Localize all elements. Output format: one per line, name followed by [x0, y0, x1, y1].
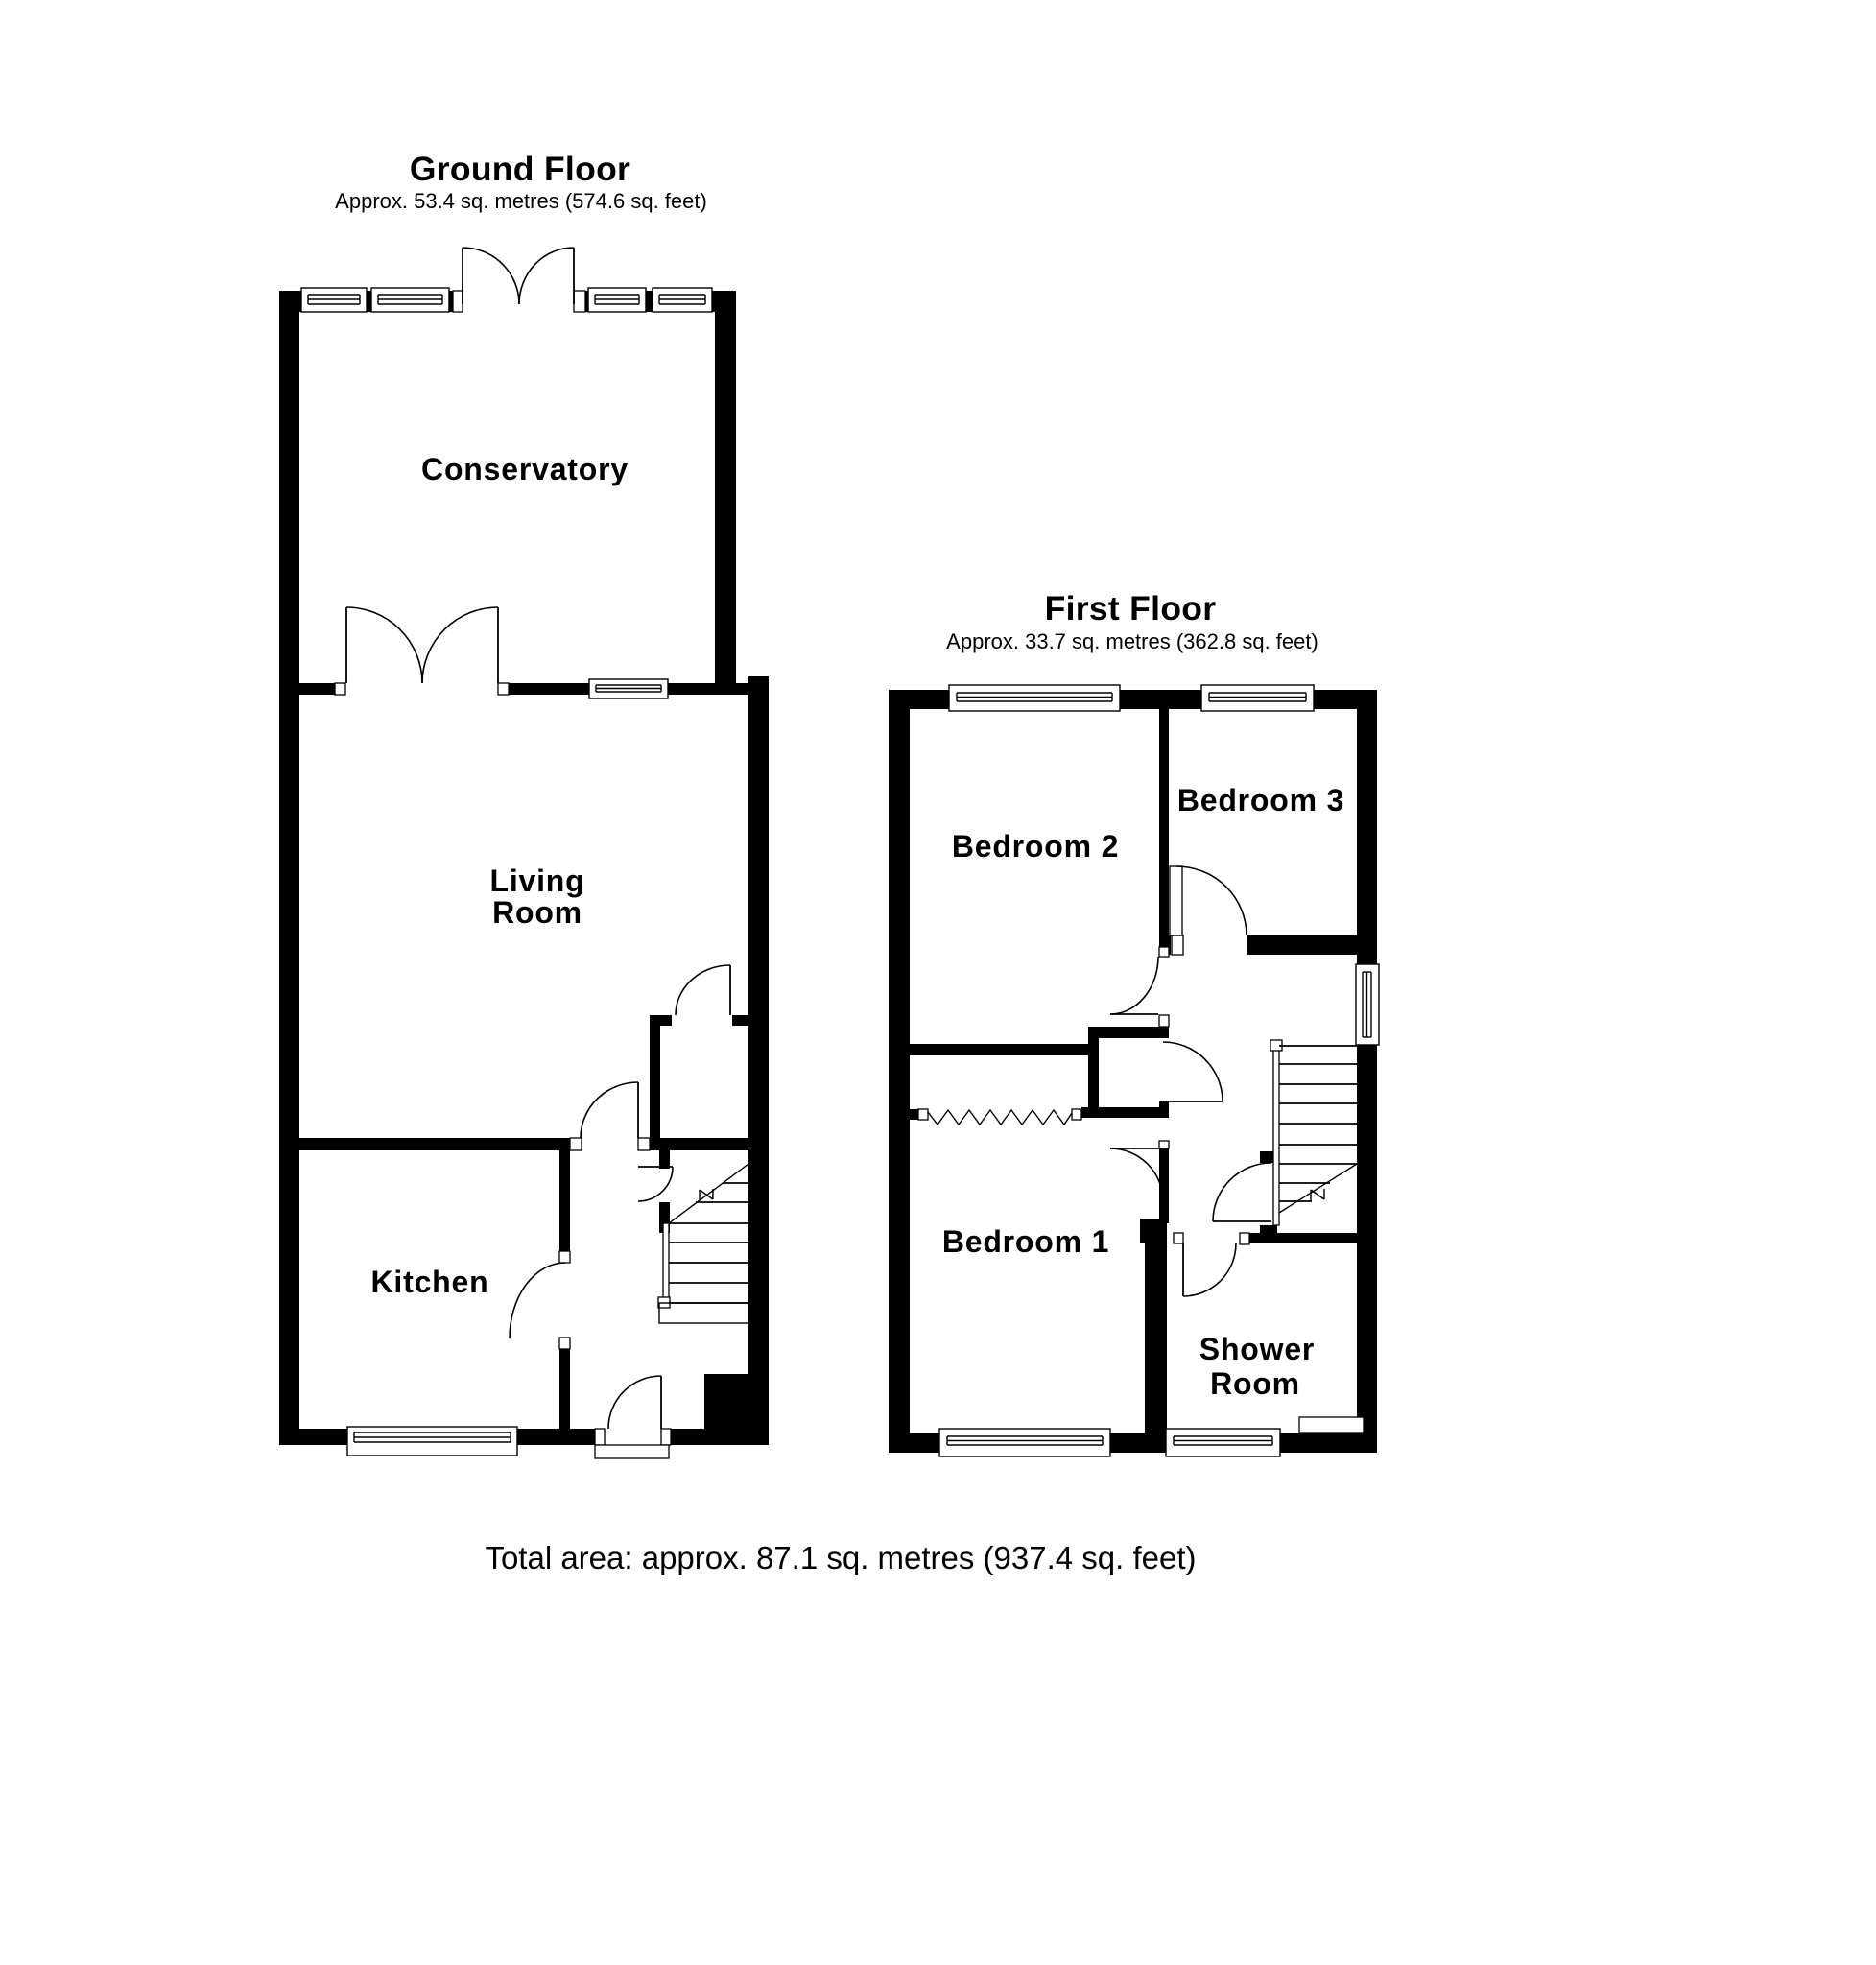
svg-text:Total area: approx. 87.1 sq. m: Total area: approx. 87.1 sq. metres (937… — [485, 1540, 1196, 1575]
svg-text:Shower: Shower — [1199, 1332, 1315, 1366]
svg-text:Bedroom 2: Bedroom 2 — [952, 829, 1119, 864]
svg-text:Approx. 53.4 sq. metres (574.6: Approx. 53.4 sq. metres (574.6 sq. feet) — [335, 189, 707, 213]
svg-text:Room: Room — [1210, 1366, 1300, 1401]
svg-text:Conservatory: Conservatory — [421, 452, 629, 486]
svg-text:Ground Floor: Ground Floor — [410, 150, 630, 188]
svg-text:Room: Room — [492, 895, 582, 930]
svg-text:Bedroom 1: Bedroom 1 — [942, 1224, 1109, 1259]
svg-text:Approx. 33.7 sq. metres (362.8: Approx. 33.7 sq. metres (362.8 sq. feet) — [946, 629, 1318, 653]
svg-text:Kitchen: Kitchen — [371, 1265, 489, 1299]
svg-text:Bedroom 3: Bedroom 3 — [1177, 783, 1344, 817]
svg-text:First Floor: First Floor — [1045, 589, 1217, 627]
svg-text:Living: Living — [489, 864, 584, 898]
